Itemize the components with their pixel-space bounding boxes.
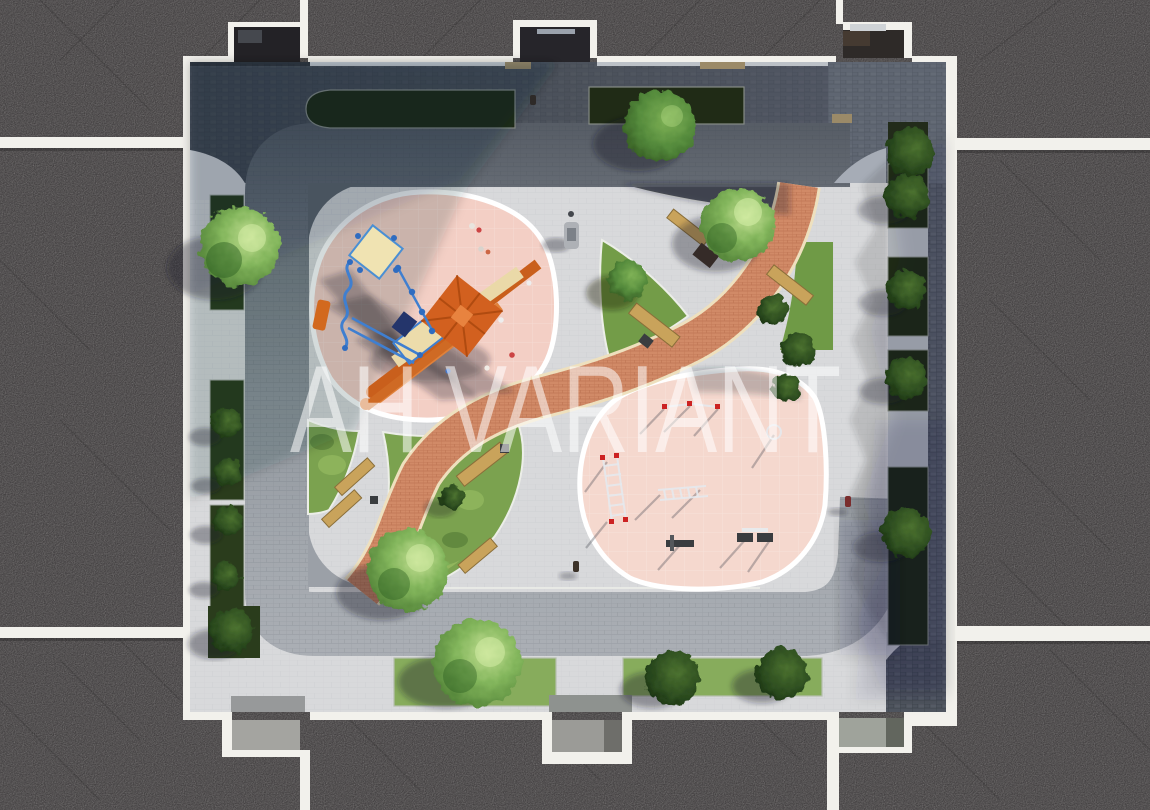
svg-text:AH VARIANT: AH VARIANT	[290, 341, 841, 479]
